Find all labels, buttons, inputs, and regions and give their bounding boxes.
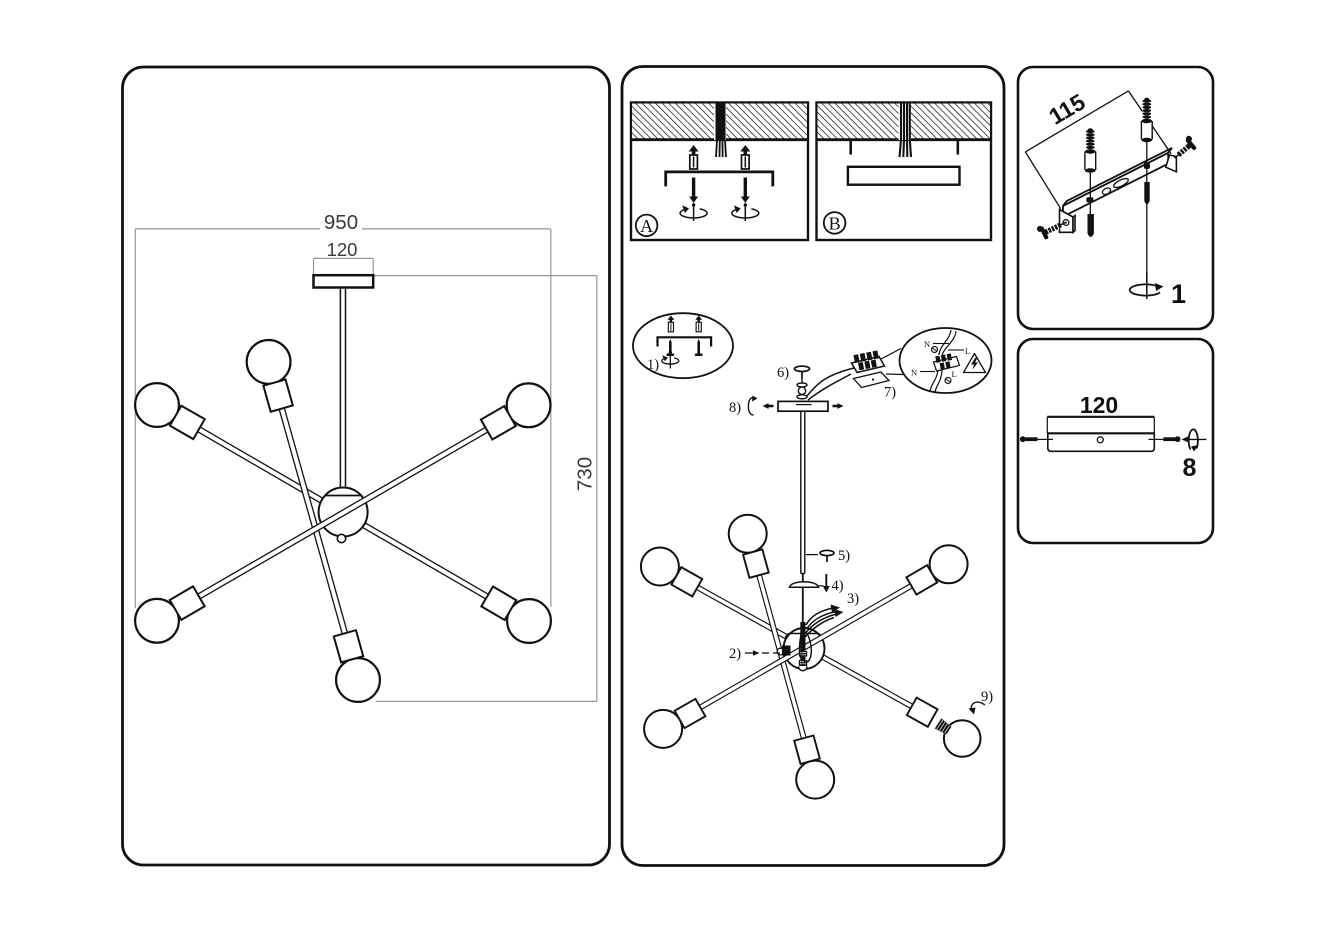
svg-text:950: 950 bbox=[324, 211, 358, 234]
svg-text:6): 6) bbox=[777, 365, 789, 381]
svg-text:9): 9) bbox=[981, 689, 993, 705]
svg-text:3): 3) bbox=[847, 591, 859, 607]
svg-text:8: 8 bbox=[1183, 454, 1197, 482]
svg-text:730: 730 bbox=[574, 457, 597, 491]
svg-text:B: B bbox=[829, 213, 841, 233]
svg-text:L: L bbox=[952, 369, 957, 379]
svg-text:1): 1) bbox=[647, 357, 659, 373]
svg-text:L: L bbox=[965, 346, 970, 356]
svg-text:2): 2) bbox=[729, 646, 741, 662]
svg-text:8): 8) bbox=[729, 400, 741, 416]
svg-text:120: 120 bbox=[1080, 392, 1118, 418]
svg-text:A: A bbox=[640, 216, 653, 236]
svg-text:120: 120 bbox=[327, 239, 358, 260]
svg-text:7): 7) bbox=[884, 385, 896, 401]
svg-text:1: 1 bbox=[1171, 279, 1186, 309]
svg-text:4): 4) bbox=[832, 578, 844, 594]
svg-text:5): 5) bbox=[838, 548, 850, 564]
svg-text:N: N bbox=[911, 368, 917, 378]
svg-text:N: N bbox=[924, 339, 930, 349]
